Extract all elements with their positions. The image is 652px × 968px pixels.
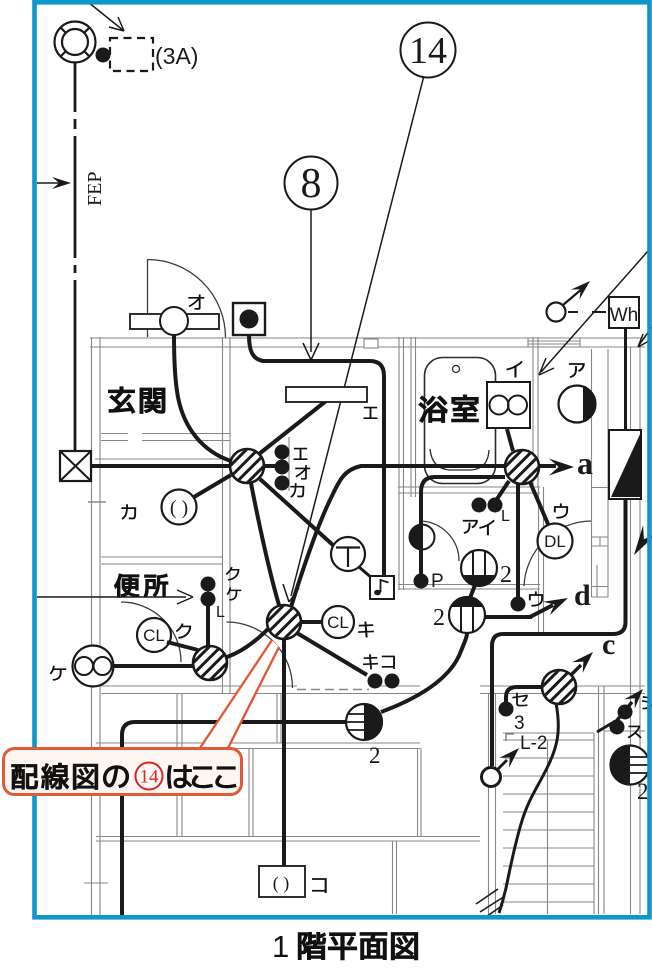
svg-text:c: c [602, 628, 615, 661]
svg-text:3: 3 [514, 713, 525, 734]
svg-text:14: 14 [409, 30, 447, 72]
svg-text:2: 2 [500, 562, 512, 588]
svg-text:FEP: FEP [84, 172, 106, 206]
svg-text:2: 2 [637, 779, 649, 804]
svg-text:d: d [574, 579, 591, 612]
svg-text:L: L [216, 604, 225, 621]
svg-text:L: L [501, 508, 510, 525]
svg-text:( ): ( ) [273, 873, 290, 894]
svg-text:Wh: Wh [610, 305, 639, 326]
svg-text:2: 2 [369, 743, 381, 768]
svg-text:P: P [431, 571, 444, 592]
svg-text:1: 1 [272, 929, 289, 964]
svg-text:L-2: L-2 [520, 733, 547, 754]
svg-text:(3A): (3A) [155, 43, 198, 69]
svg-text:CL: CL [327, 613, 349, 632]
svg-text:2: 2 [433, 605, 445, 631]
svg-text:CL: CL [143, 626, 165, 645]
svg-text:a: a [577, 445, 593, 481]
svg-text:DL: DL [544, 532, 566, 551]
svg-text:14: 14 [140, 767, 160, 788]
svg-text:( ): ( ) [170, 497, 188, 519]
svg-text:8: 8 [301, 161, 322, 207]
